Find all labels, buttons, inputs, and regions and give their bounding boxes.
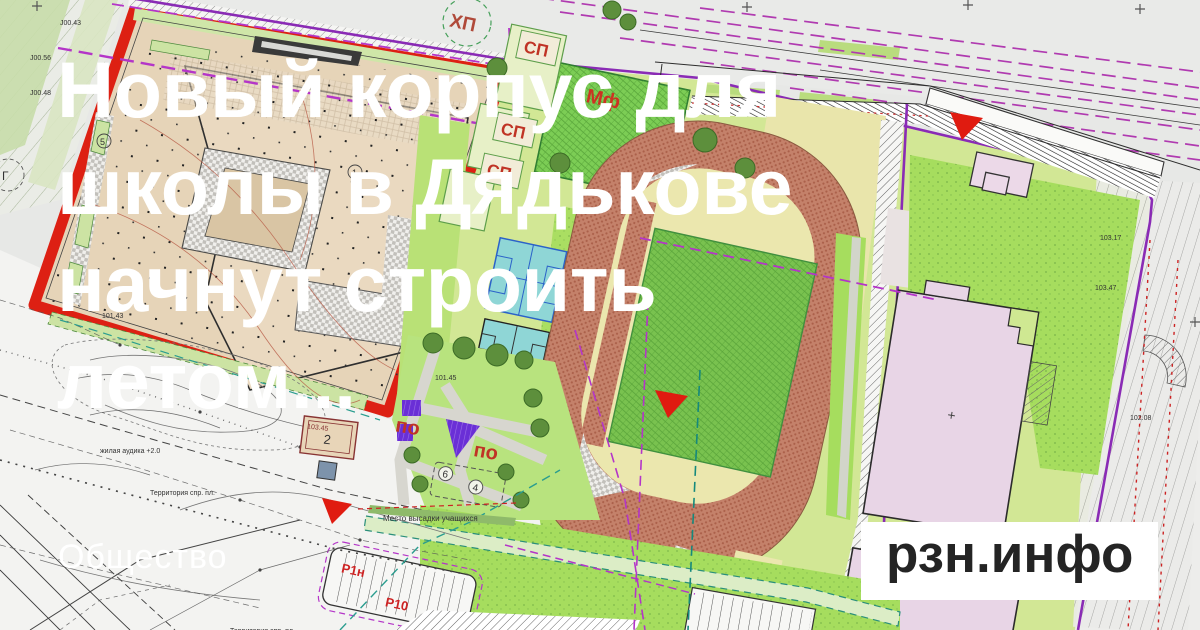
svg-text:Территория спр. пл.: Территория спр. пл. — [150, 490, 215, 497]
svg-text:J00.56: J00.56 — [30, 55, 51, 62]
svg-text:J00.43: J00.43 — [60, 20, 81, 27]
svg-text:102.08: 102.08 — [1130, 415, 1152, 422]
svg-text:103.47: 103.47 — [1095, 285, 1117, 292]
svg-text:J00.48: J00.48 — [30, 90, 51, 97]
svg-text:Г: Г — [2, 169, 9, 183]
svg-text:жилая аудика +2.0: жилая аудика +2.0 — [100, 448, 160, 455]
svg-text:Место высадки учащихся: Место высадки учащихся — [383, 514, 478, 523]
svg-text:103.17: 103.17 — [1100, 235, 1122, 242]
svg-text:по: по — [472, 439, 500, 465]
